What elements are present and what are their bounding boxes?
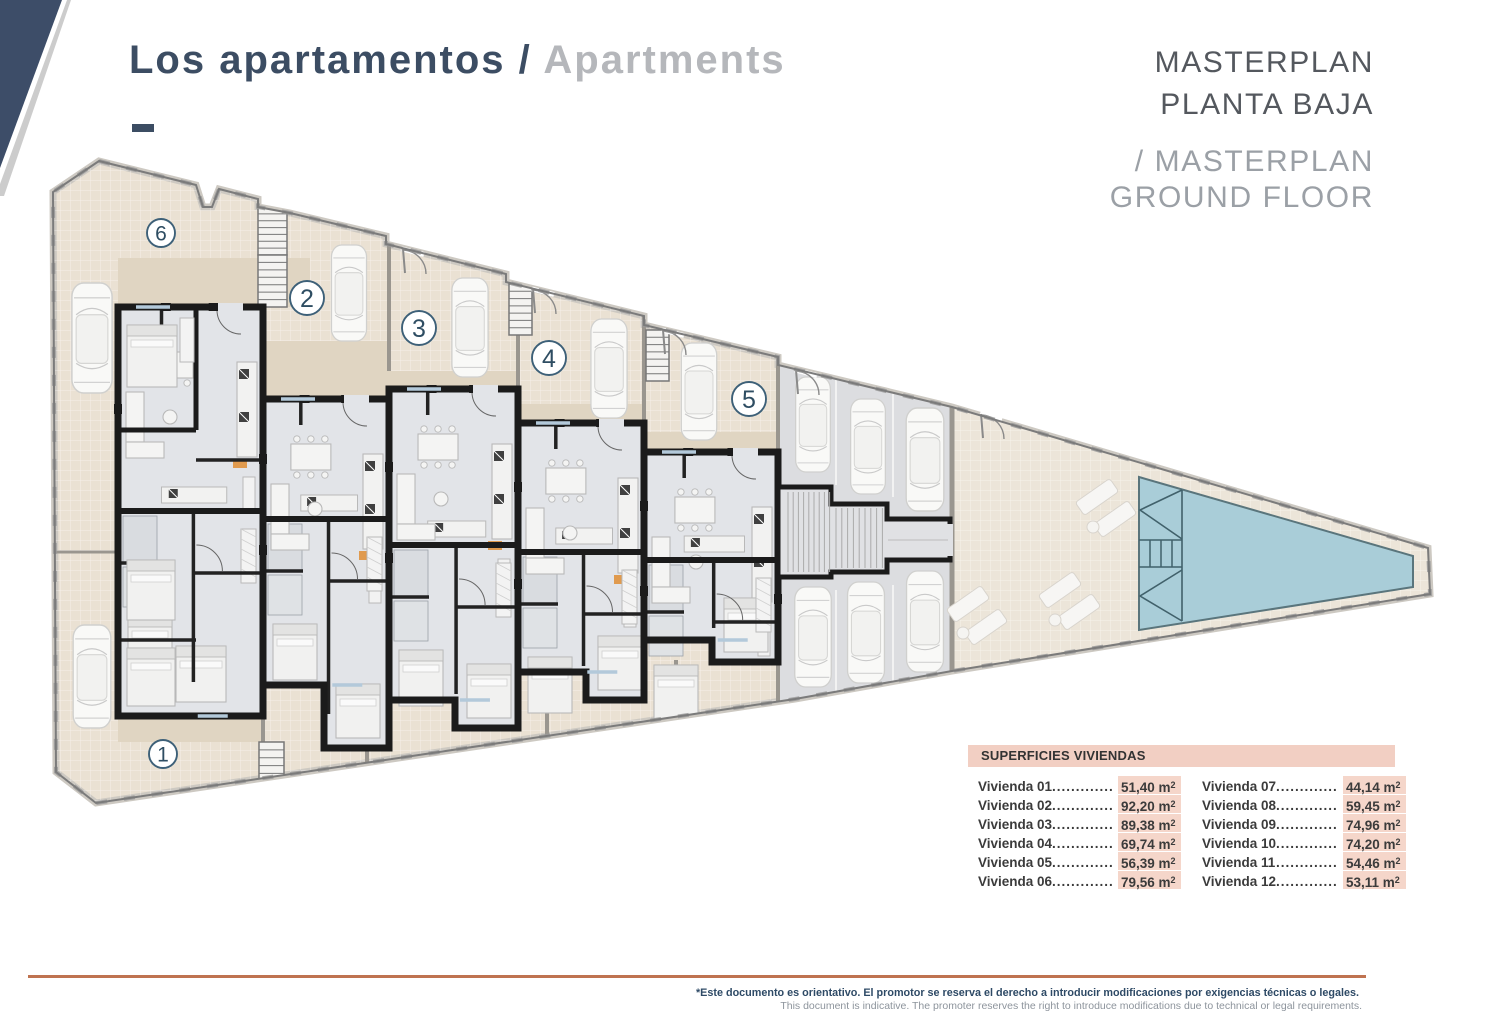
svg-text:2: 2 bbox=[300, 285, 314, 313]
svg-text:4: 4 bbox=[542, 345, 556, 373]
svg-text:6: 6 bbox=[155, 223, 167, 246]
svg-text:1: 1 bbox=[157, 744, 169, 767]
svg-text:5: 5 bbox=[742, 386, 756, 414]
svg-text:3: 3 bbox=[412, 315, 426, 343]
